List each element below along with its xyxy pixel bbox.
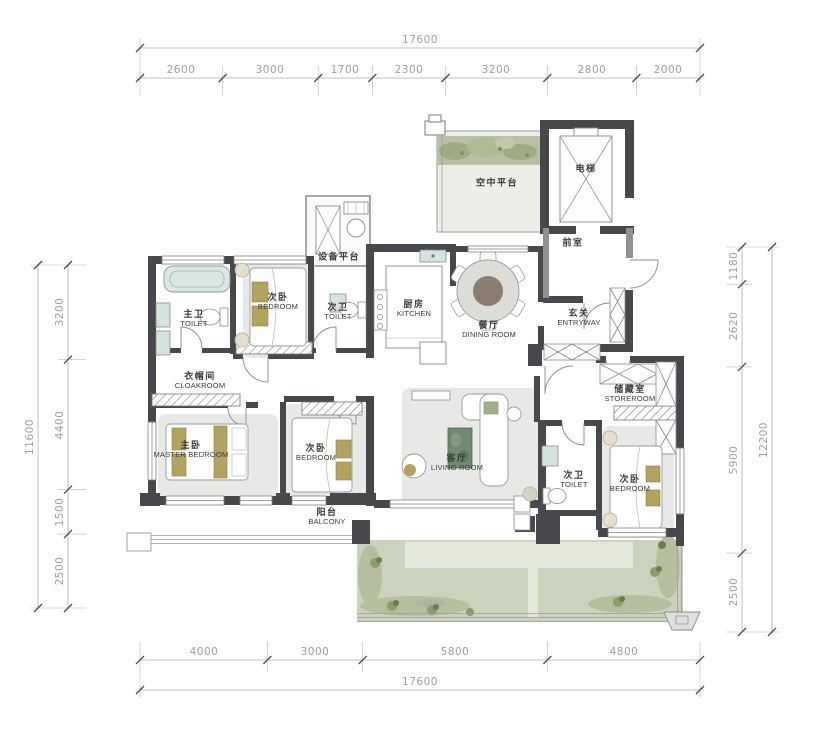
door-lobby-east [630, 260, 658, 288]
dim-right-seg-2: 5900 [728, 446, 740, 475]
sky-platform-area [425, 115, 543, 232]
door-hall [545, 366, 573, 394]
dim-top-seg-1: 3000 [256, 64, 285, 76]
plant-icon [523, 487, 537, 501]
dim-top-seg-6: 2000 [654, 64, 683, 76]
walls-medium [543, 228, 633, 298]
bedside-plant [235, 333, 249, 347]
dimension-lines-right [726, 243, 780, 636]
stove-icon [374, 290, 387, 330]
dim-left-seg-3: 2500 [54, 557, 66, 586]
terrace-drain [664, 612, 700, 630]
sofa-pillow [484, 402, 498, 414]
door-master-toilet [181, 327, 202, 348]
toilet-icon [200, 308, 228, 326]
vanity-sink [156, 303, 170, 327]
dim-right-seg-0: 1180 [728, 252, 740, 281]
bedside-plant [603, 513, 617, 527]
dim-top-seg-5: 2800 [578, 64, 607, 76]
washer-icon [514, 514, 530, 530]
toilet-icon [340, 302, 366, 318]
entry-shoe-cabinet [610, 288, 625, 342]
dim-bottom-seg-3: 4800 [610, 646, 639, 658]
dim-left-seg-1: 4400 [54, 411, 66, 440]
bedside-plant [235, 263, 249, 277]
toilet-icon [543, 488, 566, 504]
armchair [402, 454, 426, 478]
dim-right-seg-3: 2500 [728, 578, 740, 607]
dimension-text-bottom: 4000 3000 5800 4800 17600 [190, 646, 639, 688]
dimension-text-top: 17600 2600 3000 1700 2300 3200 2800 2000 [167, 34, 683, 76]
elevator-shaft [560, 128, 612, 222]
dim-bottom-seg-1: 3000 [301, 646, 330, 658]
master-toilet-fixtures [156, 266, 230, 355]
dim-top-seg-3: 2300 [395, 64, 424, 76]
dim-left-seg-0: 3200 [54, 298, 66, 327]
door-lobby-entry [584, 303, 610, 329]
door-toilet-top [312, 327, 336, 351]
chimney-icon [425, 115, 445, 135]
side-table [507, 407, 521, 421]
coffee-table [448, 428, 472, 468]
bedside-plant [603, 431, 617, 445]
entry-bench-cabinet [544, 344, 600, 360]
dim-top-total: 17600 [402, 34, 438, 46]
dim-top-seg-2: 1700 [331, 64, 360, 76]
bed-bedroom-left [292, 418, 352, 492]
balcony-railing [127, 533, 357, 551]
dim-bottom-seg-2: 5800 [441, 646, 470, 658]
vanity-sink [156, 331, 170, 355]
sink [542, 446, 558, 466]
door-toilet-right [562, 423, 584, 445]
dim-top-seg-0: 2600 [167, 64, 196, 76]
sideboard [420, 342, 446, 364]
equipment-platform-area [306, 196, 370, 266]
tv-bench [412, 391, 450, 400]
dim-left-seg-2: 1500 [54, 498, 66, 527]
floor-plan-page: 17600 2600 3000 1700 2300 3200 2800 2000… [0, 0, 814, 733]
bed-master [166, 424, 248, 480]
dim-left-total: 11600 [24, 419, 36, 455]
kitchen-furniture [374, 250, 446, 348]
bathtub [164, 266, 230, 292]
toilet-top-fixtures [330, 294, 366, 318]
dim-right-seg-1: 2620 [728, 312, 740, 341]
garden-terrace [357, 534, 700, 630]
dim-bottom-seg-0: 4000 [190, 646, 219, 658]
dimension-text-left: 11600 3200 4400 1500 2500 [24, 298, 66, 586]
dim-top-seg-4: 3200 [482, 64, 511, 76]
floor-plan-drawing: 17600 2600 3000 1700 2300 3200 2800 2000… [0, 0, 814, 733]
door-bedroom-top [243, 357, 268, 382]
dim-right-total: 12200 [758, 422, 770, 458]
dim-bottom-total: 17600 [402, 676, 438, 688]
